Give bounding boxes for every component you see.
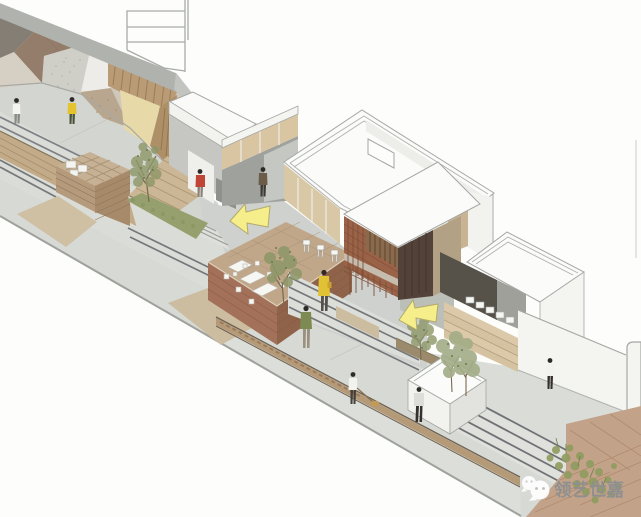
svg-text:领艺世嘉: 领艺世嘉 [554,480,624,500]
